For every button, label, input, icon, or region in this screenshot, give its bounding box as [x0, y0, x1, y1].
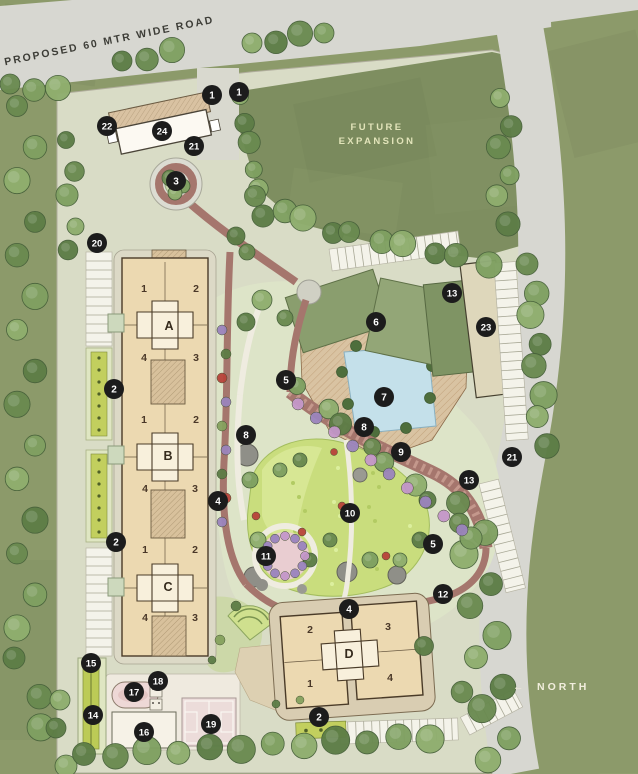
shrub: [281, 572, 290, 581]
tree: [364, 439, 381, 456]
tree: [529, 333, 551, 355]
svg-text:8: 8: [243, 431, 249, 442]
shrub: [328, 426, 340, 438]
tree: [277, 310, 293, 326]
tree: [3, 647, 25, 669]
tree: [522, 353, 547, 378]
svg-text:2: 2: [113, 538, 119, 549]
svg-text:23: 23: [481, 322, 492, 333]
tree: [7, 96, 28, 117]
building-letter: B: [163, 449, 172, 463]
tree: [293, 453, 307, 467]
tree: [245, 186, 266, 207]
tree: [314, 23, 334, 43]
tree: [498, 727, 521, 750]
tree: [252, 205, 274, 227]
tree: [465, 646, 488, 669]
shrub: [298, 561, 307, 570]
shrub: [456, 524, 468, 536]
svg-text:20: 20: [92, 238, 103, 249]
svg-text:15: 15: [86, 658, 97, 669]
shrub: [296, 696, 304, 704]
unit-number: 2: [307, 624, 313, 636]
marker-1: 1: [229, 82, 249, 102]
shrub: [215, 635, 225, 645]
unit-number: 1: [141, 414, 147, 426]
shrub: [298, 541, 307, 550]
marker-21: 21: [184, 136, 204, 156]
tree: [7, 543, 28, 564]
tree: [496, 212, 520, 236]
tree: [136, 48, 159, 71]
marker-16: 16: [134, 722, 154, 742]
tree: [517, 301, 544, 328]
tree: [468, 695, 496, 723]
svg-text:3: 3: [173, 177, 179, 188]
tree: [58, 240, 78, 260]
north-indicator: ← NORTH: [513, 681, 589, 693]
tree: [500, 116, 522, 138]
tree: [58, 132, 75, 149]
site-plan-drawing: PROPOSED 60 MTR WIDE ROAD FUTURE EXPANSI…: [0, 0, 638, 774]
marker-11: 11: [256, 546, 276, 566]
shrub: [298, 528, 306, 536]
svg-text:4: 4: [215, 497, 221, 508]
svg-text:2: 2: [316, 713, 322, 724]
shrub: [280, 532, 289, 541]
tree: [530, 382, 557, 409]
building-letter: A: [164, 319, 173, 333]
marker-17: 17: [124, 682, 144, 702]
marker-12: 12: [433, 584, 453, 604]
svg-text:14: 14: [88, 710, 99, 721]
north-arrow-icon: ←: [513, 681, 527, 693]
tree: [416, 725, 444, 753]
shrub: [290, 534, 299, 543]
svg-text:21: 21: [507, 452, 518, 463]
shrub: [221, 397, 231, 407]
tree: [4, 167, 30, 193]
palm-tree: [343, 399, 354, 410]
marker-2: 2: [104, 379, 124, 399]
unit-number: 3: [192, 483, 198, 495]
building-letter: D: [344, 647, 353, 661]
shrub: [221, 445, 231, 455]
shrub: [365, 454, 377, 466]
palm-tree: [401, 423, 412, 434]
marker-22: 22: [97, 116, 117, 136]
unit-number: 4: [142, 483, 148, 495]
tree: [516, 253, 538, 275]
shrub: [301, 552, 310, 561]
svg-text:17: 17: [129, 687, 140, 698]
marker-9: 9: [391, 442, 411, 462]
palm-tree: [337, 367, 348, 378]
tree: [526, 406, 548, 428]
lawn-texture-dot: [375, 567, 379, 571]
shrub: [382, 552, 390, 560]
marker-4: 4: [208, 491, 228, 511]
svg-text:2: 2: [111, 385, 117, 396]
tree: [4, 615, 30, 641]
svg-text:5: 5: [283, 376, 289, 387]
tree: [67, 218, 84, 235]
svg-text:13: 13: [464, 475, 475, 486]
unit-number: 3: [192, 612, 198, 624]
tree: [23, 135, 47, 159]
marker-24: 24: [152, 121, 172, 141]
tree: [475, 747, 501, 773]
marker-19: 19: [201, 714, 221, 734]
north-label: NORTH: [537, 681, 589, 693]
tree: [339, 222, 360, 243]
tree: [291, 733, 317, 759]
lawn-texture-dot: [336, 466, 340, 470]
shrub: [420, 496, 432, 508]
marker-5: 5: [276, 370, 296, 390]
unit-number: 1: [141, 283, 147, 295]
site-plan-page: PROPOSED 60 MTR WIDE ROAD FUTURE EXPANSI…: [0, 0, 638, 774]
palm-tree: [425, 393, 436, 404]
tree: [252, 290, 272, 310]
tree: [491, 89, 510, 108]
parking-band: [86, 548, 112, 656]
lawn-texture-dot: [408, 524, 412, 528]
tree: [5, 467, 29, 491]
marker-23: 23: [476, 317, 496, 337]
shrub: [217, 325, 227, 335]
tree: [356, 731, 379, 754]
marker-15: 15: [81, 653, 101, 673]
svg-text:4: 4: [346, 605, 352, 616]
svg-text:11: 11: [261, 551, 272, 562]
tree: [23, 79, 46, 102]
tree: [5, 243, 29, 267]
unit-number: 4: [141, 352, 147, 364]
tree: [167, 741, 190, 764]
unit-number: 3: [193, 352, 199, 364]
marker-8: 8: [354, 417, 374, 437]
tree: [483, 621, 511, 649]
tree: [227, 735, 255, 763]
svg-text:16: 16: [139, 727, 150, 738]
lawn-texture-dot: [373, 519, 377, 523]
marker-5: 5: [423, 534, 443, 554]
tree: [242, 472, 258, 488]
tree: [22, 283, 48, 309]
shrub: [217, 373, 227, 383]
tree: [65, 162, 85, 182]
tree: [23, 359, 47, 383]
svg-text:5: 5: [430, 540, 436, 551]
building-letter: C: [163, 580, 172, 594]
tree: [273, 463, 287, 477]
marker-13: 13: [459, 470, 479, 490]
tree: [490, 674, 516, 700]
unit-number: 2: [192, 544, 198, 556]
shrub: [292, 398, 304, 410]
tree: [25, 211, 46, 232]
tree: [322, 726, 350, 754]
tree: [197, 734, 223, 760]
tree: [265, 31, 288, 54]
shrub: [208, 656, 216, 664]
tree: [486, 135, 510, 159]
marker-14: 14: [83, 705, 103, 725]
shrub: [310, 412, 322, 424]
tree: [415, 637, 434, 656]
marker-20: 20: [87, 233, 107, 253]
tree: [22, 507, 48, 533]
marker-21: 21: [502, 447, 522, 467]
tree: [261, 732, 284, 755]
marker-1: 1: [202, 85, 222, 105]
unit-number: 1: [307, 678, 313, 690]
tree: [4, 391, 30, 417]
towers-abc: [108, 250, 216, 664]
shrub: [217, 469, 227, 479]
marker-6: 6: [366, 312, 386, 332]
unit-number: 2: [193, 414, 199, 426]
tree: [393, 553, 407, 567]
tree: [0, 74, 20, 94]
tree: [444, 243, 468, 267]
shrub: [252, 512, 260, 520]
shrub: [401, 482, 413, 494]
tree: [27, 684, 52, 709]
marker-3: 3: [166, 171, 186, 191]
unit-number: 2: [193, 283, 199, 295]
tree: [323, 533, 337, 547]
unit-number: 4: [142, 612, 148, 624]
shrub: [347, 440, 359, 452]
shrub: [272, 700, 280, 708]
shrub: [217, 421, 227, 431]
svg-text:7: 7: [381, 393, 387, 404]
marker-2: 2: [106, 532, 126, 552]
svg-text:18: 18: [153, 676, 164, 687]
shrub: [217, 517, 227, 527]
shrub: [270, 534, 279, 543]
lawn-texture-dot: [367, 505, 371, 509]
tree: [112, 51, 132, 71]
svg-text:8: 8: [361, 423, 367, 434]
tree: [7, 319, 28, 340]
shrub: [438, 510, 450, 522]
tree: [451, 681, 473, 703]
tree: [25, 435, 46, 456]
lawn-texture-dot: [303, 509, 307, 513]
tree: [535, 434, 560, 459]
svg-text:22: 22: [102, 121, 113, 132]
svg-text:24: 24: [157, 126, 168, 137]
svg-text:19: 19: [206, 719, 217, 730]
tree: [50, 690, 70, 710]
tree: [425, 243, 446, 264]
tree: [237, 313, 255, 331]
tree: [390, 231, 416, 257]
tree: [45, 75, 70, 100]
tree: [159, 37, 184, 62]
tree: [242, 33, 262, 53]
tree: [103, 743, 129, 769]
tree: [238, 131, 260, 153]
marker-18: 18: [148, 671, 168, 691]
tree: [46, 718, 66, 738]
shrub: [291, 569, 300, 578]
svg-text:6: 6: [373, 318, 379, 329]
marker-2: 2: [309, 707, 329, 727]
tree: [476, 252, 502, 278]
tree: [23, 583, 47, 607]
lawn-texture-dot: [334, 548, 338, 552]
marker-4: 4: [339, 599, 359, 619]
tree: [447, 492, 470, 515]
svg-text:13: 13: [447, 288, 458, 299]
lawn-texture-dot: [371, 471, 375, 475]
shrub: [383, 468, 395, 480]
svg-text:9: 9: [398, 448, 404, 459]
tree: [386, 724, 412, 750]
tree: [457, 593, 483, 619]
marker-7: 7: [374, 387, 394, 407]
future-expansion-label-line1: FUTURE: [351, 122, 404, 133]
future-expansion-label-line2: EXPANSION: [339, 136, 416, 147]
lawn-texture-dot: [291, 481, 295, 485]
tree: [290, 205, 316, 231]
tree: [287, 21, 312, 46]
marker-10: 10: [340, 503, 360, 523]
lawn-texture-dot: [330, 582, 334, 586]
tree: [227, 227, 245, 245]
shrub: [221, 349, 231, 359]
palm-tree: [351, 341, 362, 352]
shrub: [271, 569, 280, 578]
tree: [245, 161, 262, 178]
marker-8: 8: [236, 425, 256, 445]
tree: [235, 113, 255, 133]
tree: [56, 184, 78, 206]
shrub: [231, 601, 241, 611]
lawn-texture-dot: [332, 500, 336, 504]
tree: [500, 166, 519, 185]
marker-13: 13: [442, 283, 462, 303]
tree: [486, 185, 508, 207]
unit-number: 3: [385, 621, 391, 633]
svg-text:1: 1: [209, 91, 215, 102]
tree: [480, 573, 503, 596]
svg-text:12: 12: [438, 589, 449, 600]
svg-text:21: 21: [189, 141, 200, 152]
unit-number: 1: [142, 544, 148, 556]
lawn-texture-dot: [297, 495, 301, 499]
svg-text:10: 10: [345, 508, 356, 519]
unit-number: 4: [387, 672, 393, 684]
lawn-texture-dot: [377, 485, 381, 489]
svg-text:1: 1: [236, 88, 242, 99]
shrub: [331, 449, 338, 456]
tree: [362, 552, 378, 568]
tree: [73, 743, 96, 766]
tree: [239, 244, 255, 260]
